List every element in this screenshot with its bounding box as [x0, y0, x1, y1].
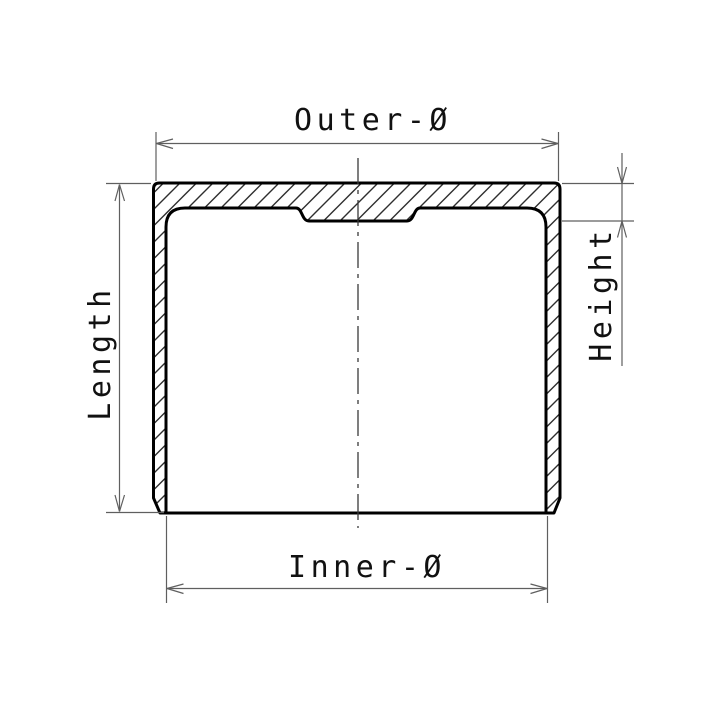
technical-drawing: Outer-Ø Inner-Ø Length Height [0, 0, 720, 720]
dim-label-length: Length [83, 285, 118, 420]
dim-label-inner-diameter: Inner-Ø [288, 550, 446, 585]
dim-label-outer-diameter: Outer-Ø [294, 103, 452, 138]
technical-drawing-canvas: Outer-Ø Inner-Ø Length Height [0, 0, 720, 720]
dim-label-height: Height [584, 226, 619, 361]
